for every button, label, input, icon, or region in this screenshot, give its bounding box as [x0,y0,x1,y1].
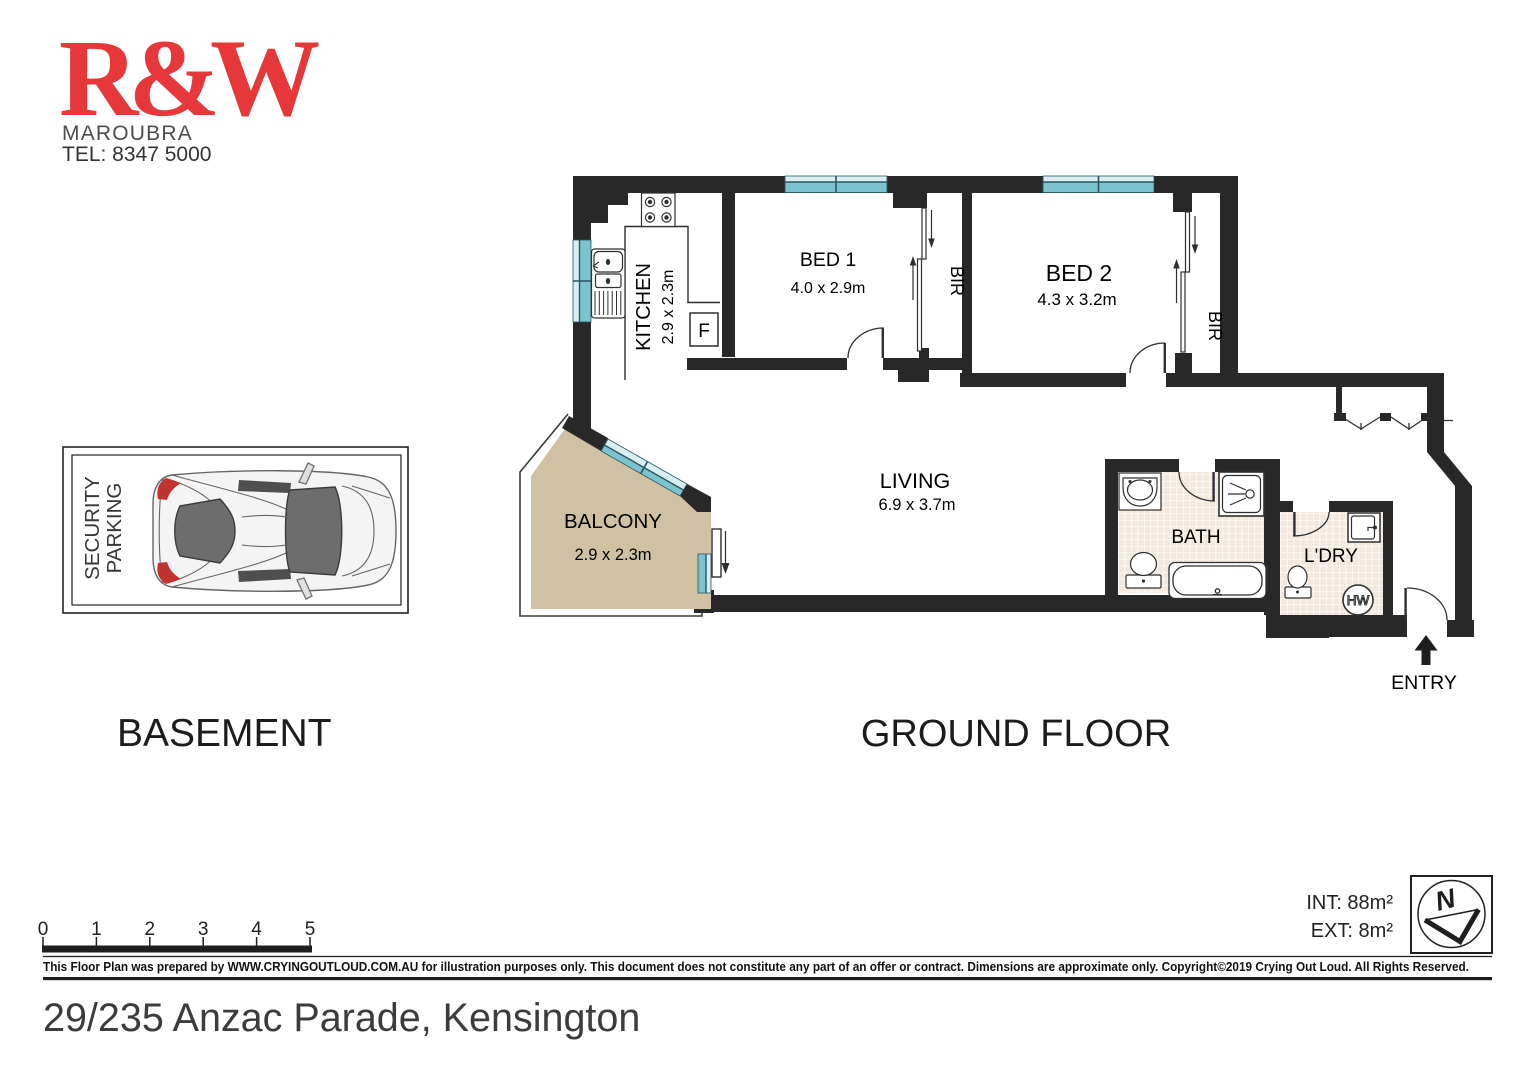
svg-text:BIR: BIR [947,266,967,296]
svg-text:ENTRY: ENTRY [1391,672,1457,694]
svg-text:BED 2: BED 2 [1046,260,1112,286]
svg-text:5: 5 [305,919,316,940]
svg-text:2.9 x 2.3m: 2.9 x 2.3m [574,546,651,564]
svg-text:This Floor Plan was prepared b: This Floor Plan was prepared by WWW.CRYI… [43,960,1469,974]
svg-text:3: 3 [198,919,209,940]
svg-text:R&W: R&W [59,17,319,139]
svg-text:GROUND FLOOR: GROUND FLOOR [861,713,1171,755]
svg-text:L'DRY: L'DRY [1304,546,1358,567]
svg-text:KITCHEN: KITCHEN [633,263,655,351]
svg-text:1: 1 [91,919,102,940]
svg-text:INT: 88m²: INT: 88m² [1306,892,1393,914]
svg-text:BATH: BATH [1171,527,1220,548]
svg-text:N: N [1432,883,1459,917]
svg-text:BIR: BIR [1205,311,1225,341]
svg-text:EXT: 8m²: EXT: 8m² [1311,920,1394,942]
svg-text:2.9 x 2.3m: 2.9 x 2.3m [660,270,677,345]
svg-text:6.9 x 3.7m: 6.9 x 3.7m [878,496,955,514]
svg-text:2: 2 [145,919,156,940]
svg-text:PARKING: PARKING [103,483,126,574]
svg-text:4: 4 [251,919,262,940]
svg-text:SECURITY: SECURITY [81,476,104,580]
svg-text:BED 1: BED 1 [800,249,856,271]
svg-text:LIVING: LIVING [880,469,951,493]
svg-text:TEL: 8347 5000: TEL: 8347 5000 [62,143,211,166]
svg-text:4.0 x 2.9m: 4.0 x 2.9m [791,280,866,297]
svg-text:BASEMENT: BASEMENT [117,712,332,755]
svg-text:HW: HW [1347,593,1370,608]
svg-text:0: 0 [38,919,49,940]
svg-text:MAROUBRA: MAROUBRA [62,122,193,145]
svg-text:F: F [698,321,710,342]
svg-text:BALCONY: BALCONY [564,510,662,533]
svg-text:4.3 x 3.2m: 4.3 x 3.2m [1037,290,1116,309]
svg-text:29/235 Anzac Parade, Kensingto: 29/235 Anzac Parade, Kensington [43,996,640,1040]
